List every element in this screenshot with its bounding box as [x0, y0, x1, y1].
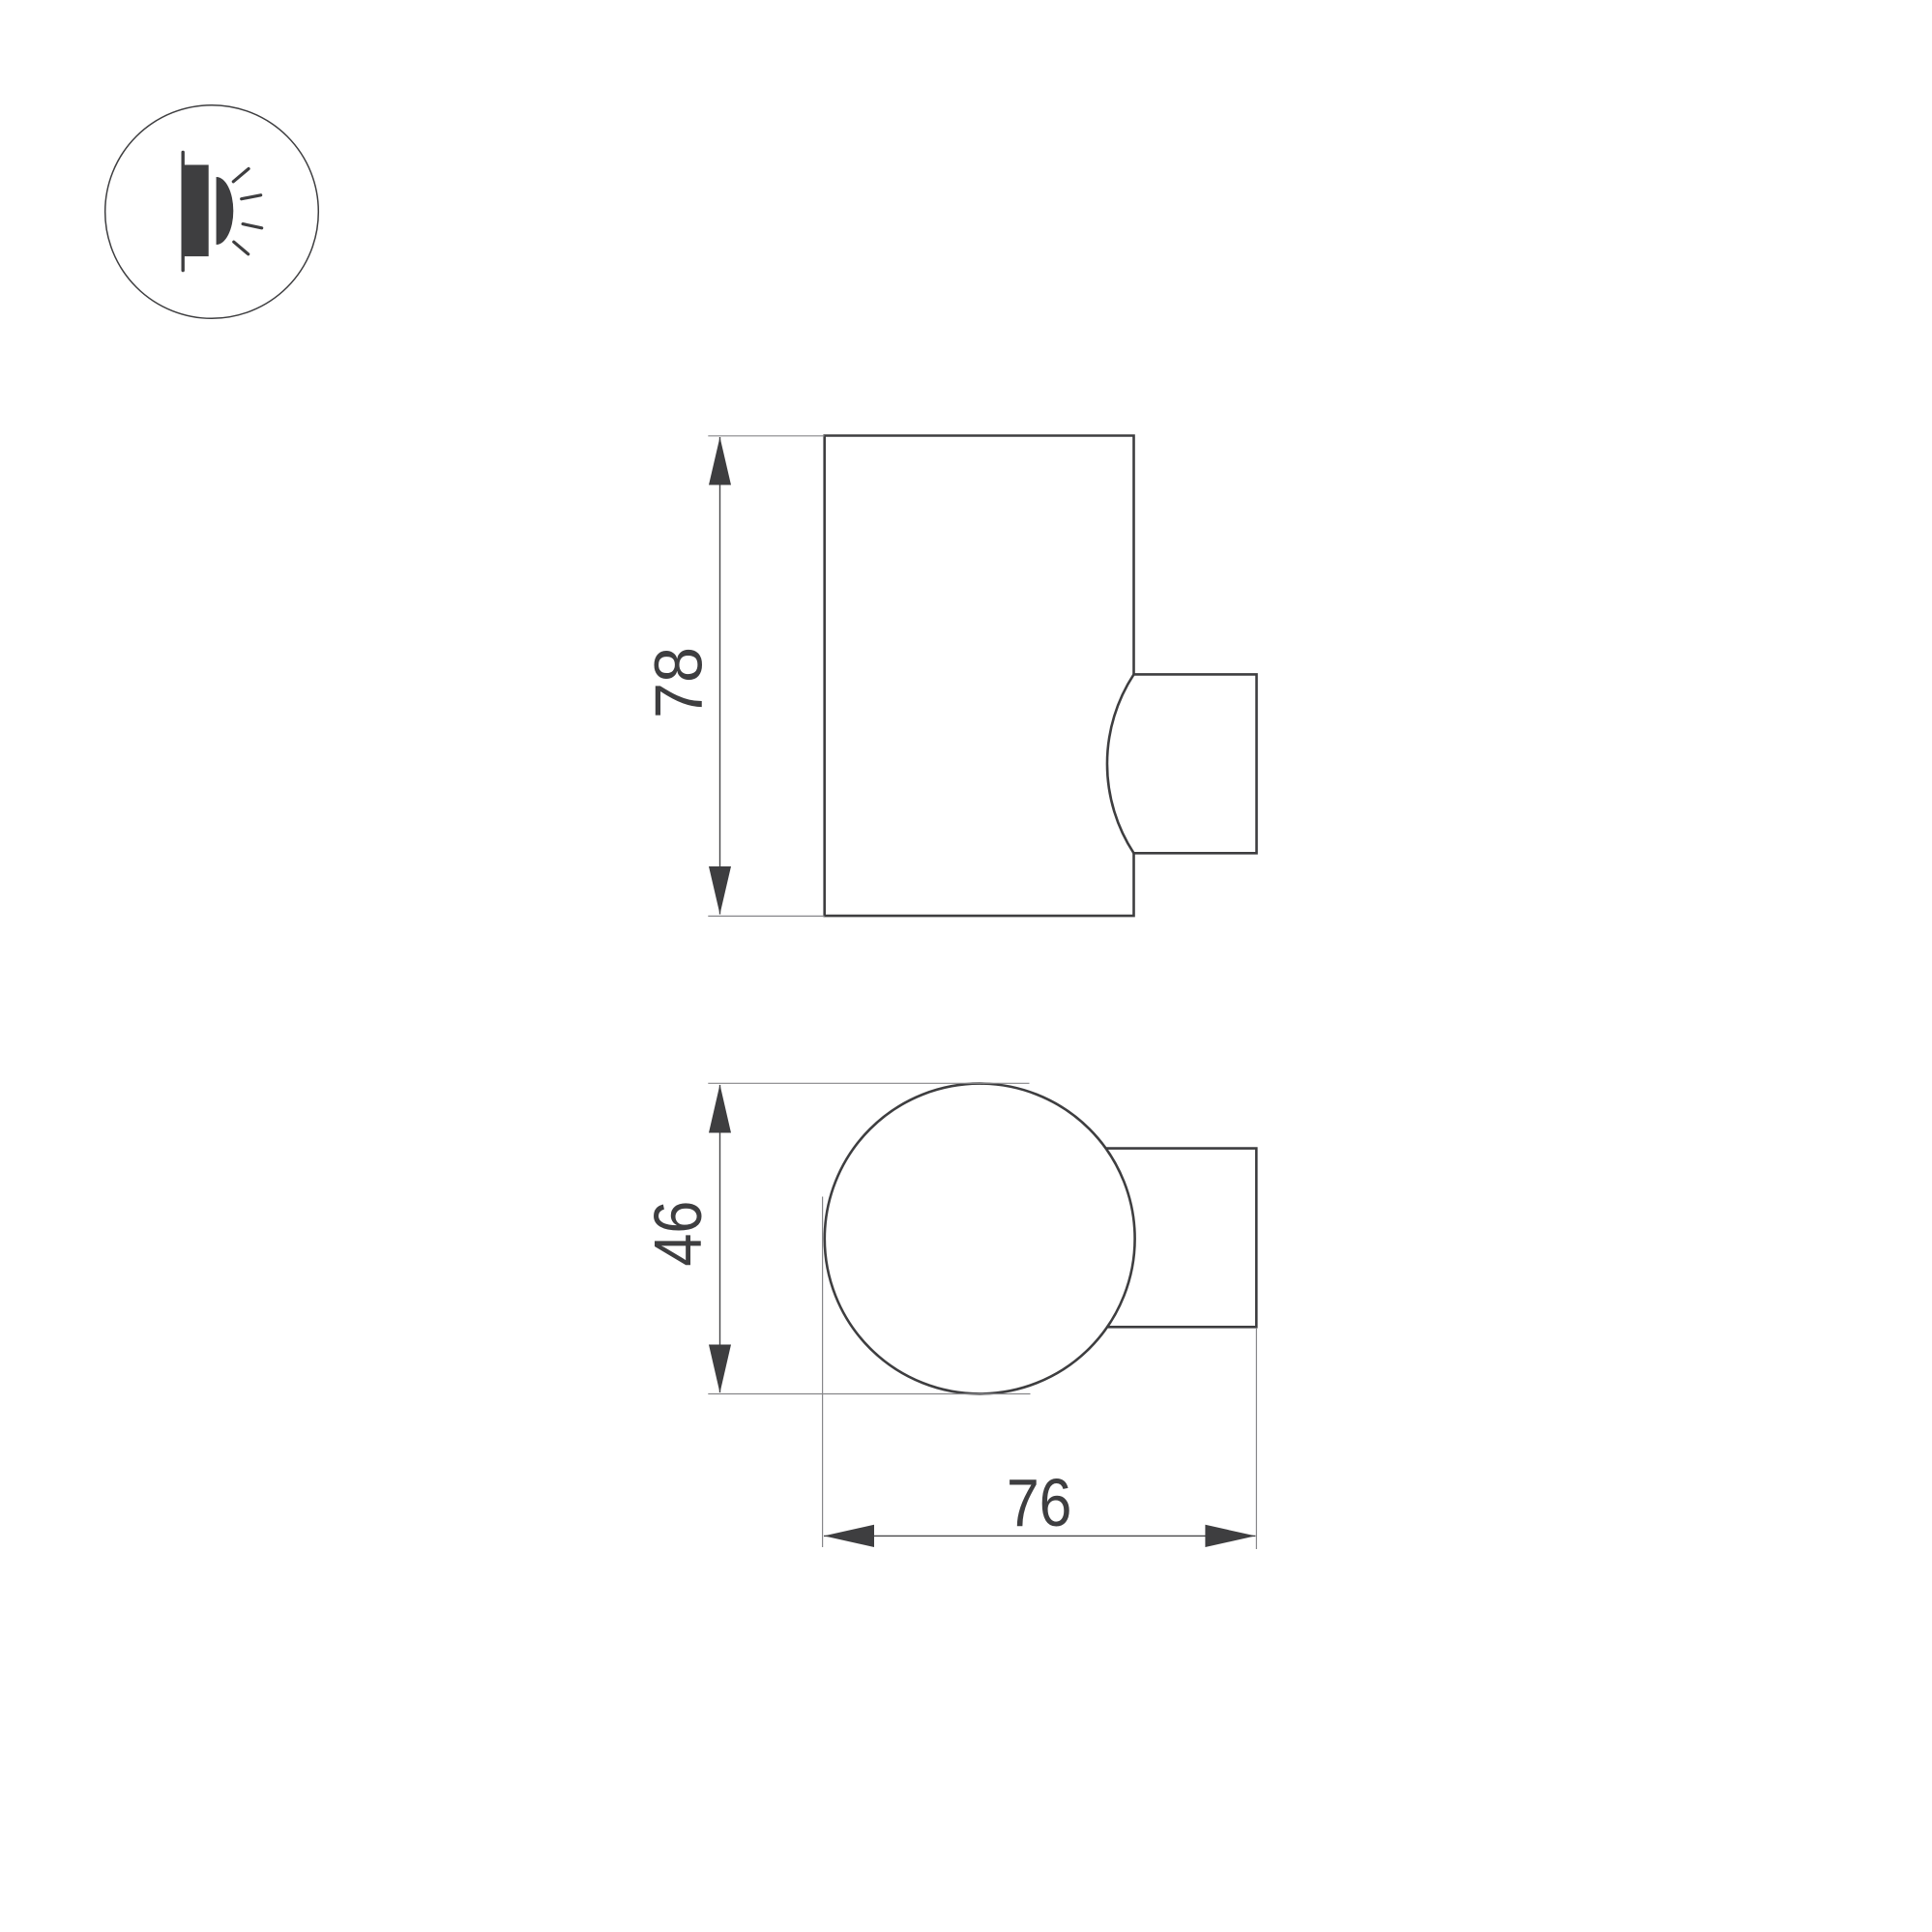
svg-text:46: 46 [640, 1201, 716, 1267]
svg-text:78: 78 [641, 647, 717, 718]
svg-text:76: 76 [1007, 1465, 1072, 1540]
